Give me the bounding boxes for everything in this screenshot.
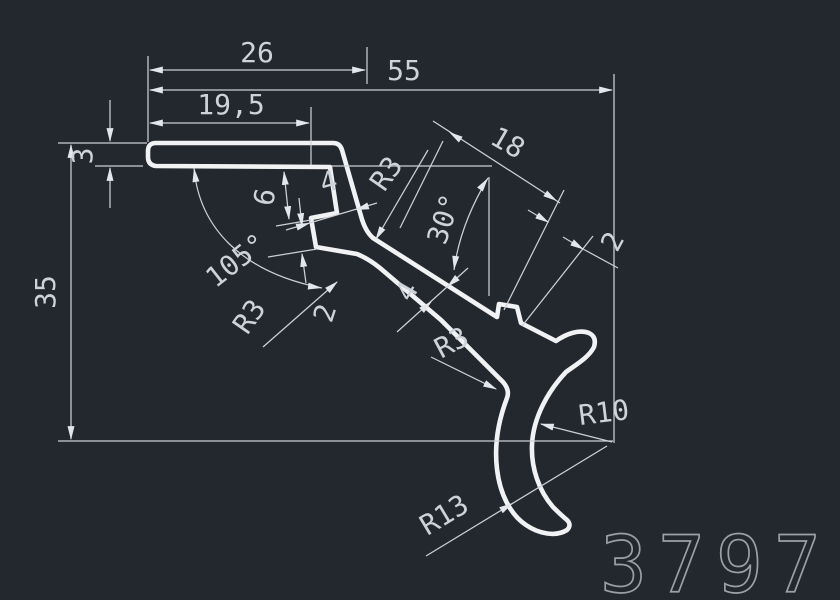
dim-lip-height: 2 <box>594 226 631 256</box>
dim-width-top: 26 <box>240 36 274 69</box>
part-number: 3797 <box>600 521 832 600</box>
dim-radius-inner: R13 <box>414 488 474 542</box>
cad-drawing-canvas: 26 55 19,5 3 35 105° 6 4 R3 2 R3 30° 18 … <box>0 0 840 600</box>
dim-radius-outer: R10 <box>577 393 631 432</box>
dim-fillet-notch: R3 <box>226 293 272 340</box>
dim-width-total: 55 <box>387 54 421 87</box>
extension-lines <box>58 47 614 443</box>
dim-width-flange: 19,5 <box>197 88 264 121</box>
dimension-labels: 26 55 19,5 3 35 105° 6 4 R3 2 R3 30° 18 … <box>29 36 631 542</box>
profile-outline <box>148 143 595 534</box>
dim-fillet-upper: R3 <box>363 150 409 197</box>
dim-flange-thickness: 3 <box>66 148 99 165</box>
dim-notch-step: 2 <box>307 300 344 326</box>
dim-leg-thickness-upper: 4 <box>316 164 341 200</box>
dim-flange-angle: 105° <box>199 227 272 295</box>
dim-slot-offset: 6 <box>247 185 283 208</box>
technical-drawing: 26 55 19,5 3 35 105° 6 4 R3 2 R3 30° 18 … <box>0 0 840 600</box>
dim-height-total: 35 <box>29 275 62 309</box>
dim-fillet-lower: R3 <box>429 320 474 365</box>
